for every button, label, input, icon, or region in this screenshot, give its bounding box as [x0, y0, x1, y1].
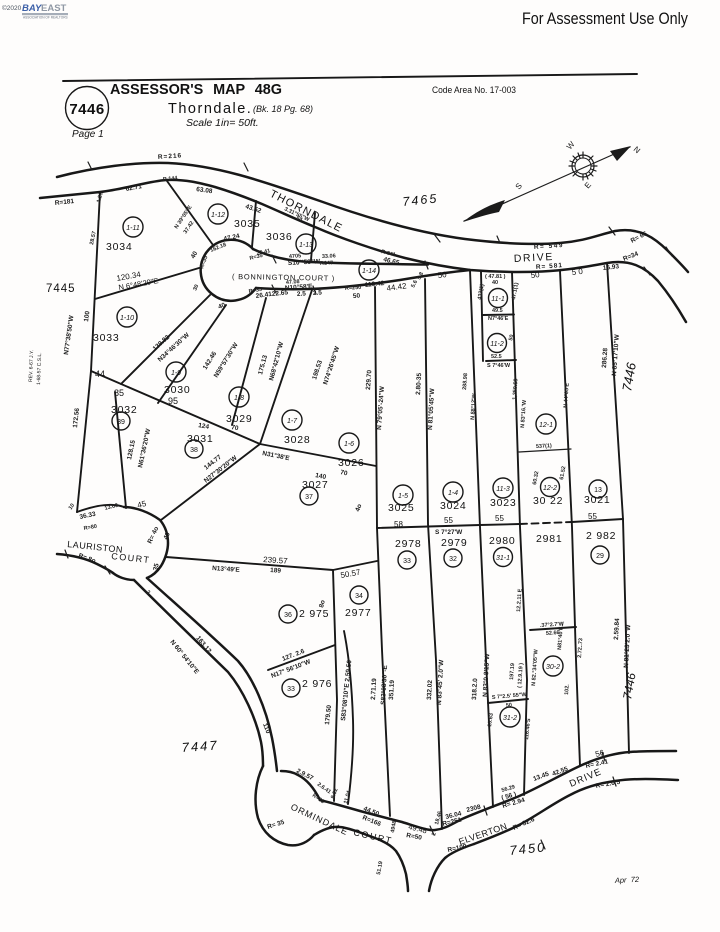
svg-text:2981: 2981	[536, 533, 563, 545]
svg-text:BAY: BAY	[22, 3, 43, 14]
svg-text:332.02: 332.02	[426, 680, 434, 701]
svg-text:S 7°27'W: S 7°27'W	[435, 528, 463, 536]
svg-text:33.06: 33.06	[322, 253, 336, 260]
svg-text:3024: 3024	[440, 500, 467, 512]
svg-text:For Assessment Use Only: For Assessment Use Only	[522, 10, 689, 28]
svg-text:1-7: 1-7	[287, 418, 298, 425]
svg-text:1-9: 1-9	[171, 370, 181, 377]
svg-text:33: 33	[403, 558, 411, 565]
svg-text:1-68-57 C.S.L.: 1-68-57 C.S.L.	[36, 352, 43, 385]
svg-text:©2020: ©2020	[2, 4, 22, 12]
svg-text:13: 13	[594, 487, 602, 494]
svg-text:3030: 3030	[164, 384, 191, 396]
svg-text:189: 189	[270, 567, 282, 575]
svg-text:Page 1: Page 1	[72, 129, 104, 140]
svg-text:3026: 3026	[338, 457, 365, 469]
svg-text:1-14: 1-14	[362, 268, 376, 275]
svg-text:3021: 3021	[584, 494, 611, 506]
svg-text:3029: 3029	[226, 413, 253, 425]
svg-text:229.70: 229.70	[365, 369, 373, 390]
svg-text:2.5: 2.5	[313, 289, 323, 297]
svg-text:3025: 3025	[388, 502, 415, 514]
svg-text:58: 58	[394, 520, 403, 529]
svg-text:1-10: 1-10	[120, 315, 134, 322]
svg-text:288.98: 288.98	[462, 373, 469, 390]
svg-text:32: 32	[449, 556, 457, 563]
svg-text:30-2: 30-2	[546, 664, 560, 671]
svg-text:37: 37	[305, 494, 313, 501]
svg-text:1-8: 1-8	[234, 395, 244, 402]
svg-text:3034: 3034	[106, 241, 133, 253]
svg-text:REV. 6-67 J.Y.: REV. 6-67 J.Y.	[28, 350, 35, 382]
svg-text:2 976: 2 976	[302, 678, 332, 690]
svg-text:55: 55	[588, 512, 597, 521]
svg-text:31-1: 31-1	[496, 555, 510, 562]
svg-text:3036: 3036	[266, 231, 293, 243]
svg-text:3033: 3033	[93, 332, 120, 344]
svg-text:55: 55	[444, 516, 453, 525]
svg-text:50: 50	[530, 270, 540, 280]
svg-text:2977: 2977	[345, 607, 372, 619]
svg-text:286.28: 286.28	[601, 347, 609, 368]
svg-text:Scale 1in= 50ft.: Scale 1in= 50ft.	[186, 117, 259, 129]
svg-text:R=250: R=250	[345, 285, 362, 292]
svg-text:2980: 2980	[489, 535, 516, 547]
svg-text:3035: 3035	[234, 218, 261, 230]
svg-text:11-3: 11-3	[496, 486, 510, 493]
svg-text:Thorndale.: Thorndale.	[168, 101, 252, 117]
svg-text:351.19: 351.19	[388, 680, 396, 701]
svg-text:49.5: 49.5	[492, 308, 503, 314]
svg-text:30 22: 30 22	[533, 495, 563, 507]
svg-text:239.57: 239.57	[263, 555, 289, 566]
svg-text:11-1: 11-1	[491, 296, 505, 303]
svg-text:50: 50	[437, 270, 447, 280]
svg-text:50: 50	[353, 292, 361, 300]
svg-text:1-5: 1-5	[398, 493, 408, 500]
svg-text:11-2: 11-2	[490, 341, 504, 348]
svg-text:1-6: 1-6	[344, 441, 354, 448]
svg-text:2.5: 2.5	[297, 290, 307, 298]
svg-text:S 7°46'W: S 7°46'W	[487, 363, 511, 369]
svg-text:5 0: 5 0	[571, 267, 584, 277]
svg-text:R147: R147	[320, 260, 333, 267]
svg-text:N7°46'E: N7°46'E	[488, 316, 509, 322]
svg-text:1-12: 1-12	[211, 212, 225, 219]
svg-text:( BONNINGTON COURT ): ( BONNINGTON COURT )	[232, 272, 335, 283]
svg-text:3023: 3023	[490, 497, 517, 509]
svg-text:7445: 7445	[46, 283, 76, 295]
svg-text:55: 55	[495, 514, 504, 523]
svg-text:12-1: 12-1	[539, 422, 553, 429]
svg-text:2979: 2979	[441, 537, 468, 549]
svg-text:2.59.84: 2.59.84	[613, 618, 621, 640]
svg-text:31-2: 31-2	[503, 715, 517, 722]
svg-text:102.: 102.	[564, 684, 571, 696]
svg-text:Code Area No. 17-003: Code Area No. 17-003	[432, 85, 516, 96]
svg-text:2.80-35: 2.80-35	[415, 372, 423, 395]
svg-text:Apr 72: Apr 72	[614, 875, 640, 885]
svg-text:12-2: 12-2	[543, 485, 557, 492]
svg-text:38: 38	[190, 447, 198, 454]
svg-text:197.19: 197.19	[509, 663, 516, 680]
svg-text:40: 40	[492, 280, 498, 286]
svg-text:EAST: EAST	[41, 3, 67, 14]
svg-text:1-13: 1-13	[299, 242, 313, 249]
svg-text:2 975: 2 975	[299, 608, 329, 620]
svg-text:29: 29	[596, 553, 604, 560]
svg-text:33: 33	[287, 686, 295, 693]
svg-text:(Bk. 18 Pg. 68): (Bk. 18 Pg. 68)	[253, 104, 313, 114]
svg-text:1-11: 1-11	[126, 225, 140, 232]
svg-text:2978: 2978	[395, 538, 422, 550]
svg-text:537(1): 537(1)	[536, 443, 552, 450]
svg-text:2.71.19: 2.71.19	[370, 678, 378, 700]
svg-text:ASSOCIATION OF REALTORS: ASSOCIATION OF REALTORS	[23, 16, 68, 20]
svg-text:1-4: 1-4	[448, 490, 458, 497]
svg-text:318.2.0: 318.2.0	[471, 678, 479, 700]
svg-text:7446: 7446	[69, 101, 104, 118]
svg-text:52.5: 52.5	[491, 354, 502, 360]
svg-text:2 982: 2 982	[586, 530, 616, 542]
svg-text:ASSESSOR'S MAP 48G: ASSESSOR'S MAP 48G	[110, 81, 282, 98]
svg-text:36: 36	[284, 612, 292, 619]
svg-text:7447: 7447	[181, 737, 219, 755]
svg-text:34: 34	[355, 593, 363, 600]
svg-text:3028: 3028	[284, 434, 311, 446]
